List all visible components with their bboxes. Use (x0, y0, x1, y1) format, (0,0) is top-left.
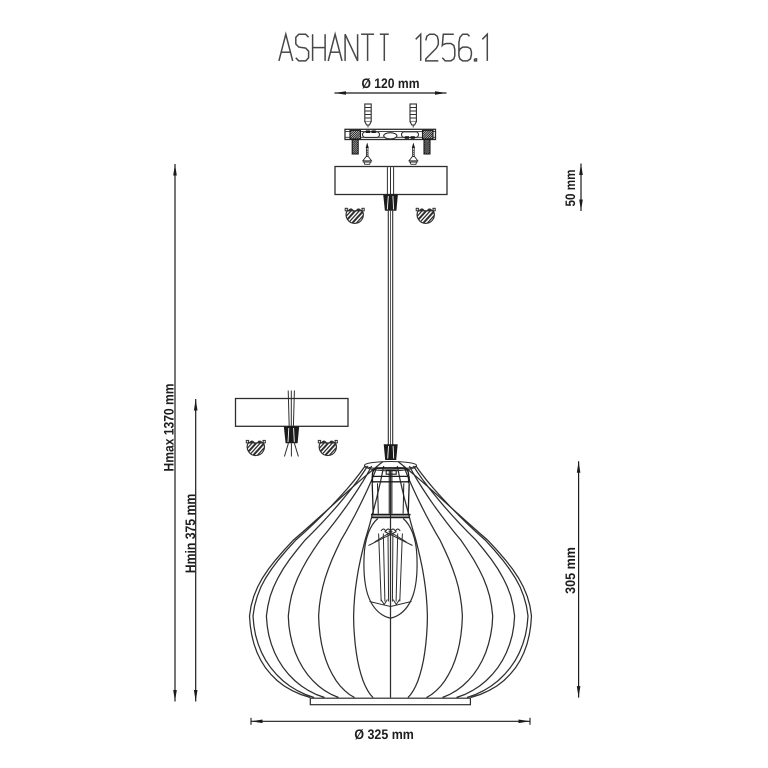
svg-text:305 mm: 305 mm (563, 547, 578, 594)
svg-text:Ø 120 mm: Ø 120 mm (362, 76, 420, 91)
svg-text:Hmax 1370 mm: Hmax 1370 mm (161, 384, 176, 472)
svg-text:Ø 325 mm: Ø 325 mm (354, 727, 413, 742)
svg-text:50 mm: 50 mm (563, 170, 578, 207)
